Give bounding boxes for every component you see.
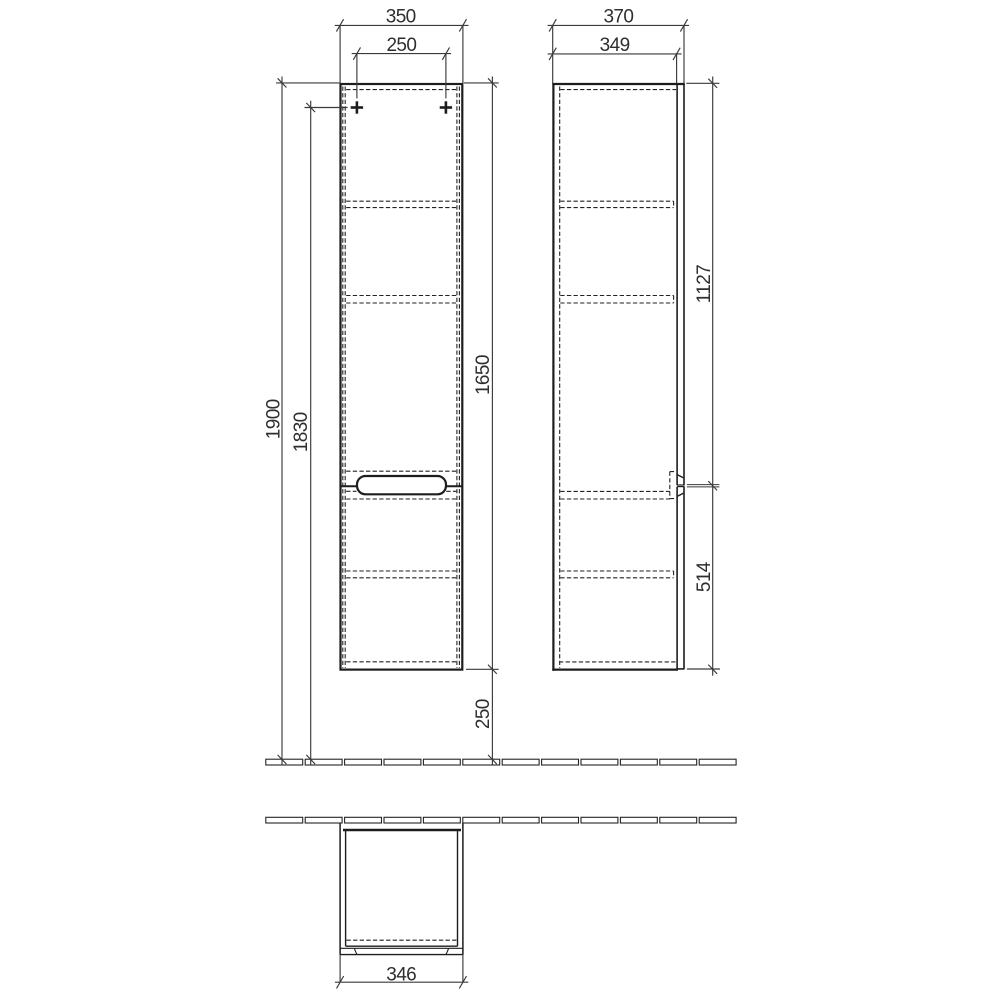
svg-text:250: 250 bbox=[473, 699, 494, 729]
svg-text:250: 250 bbox=[386, 35, 416, 56]
svg-text:1900: 1900 bbox=[264, 399, 285, 439]
svg-text:346: 346 bbox=[386, 965, 416, 986]
svg-text:1127: 1127 bbox=[694, 265, 715, 303]
svg-text:370: 370 bbox=[603, 7, 633, 28]
svg-text:349: 349 bbox=[600, 35, 630, 56]
svg-text:350: 350 bbox=[386, 7, 416, 28]
svg-text:1830: 1830 bbox=[291, 412, 312, 452]
svg-text:1650: 1650 bbox=[473, 355, 494, 395]
svg-text:514: 514 bbox=[694, 561, 715, 592]
